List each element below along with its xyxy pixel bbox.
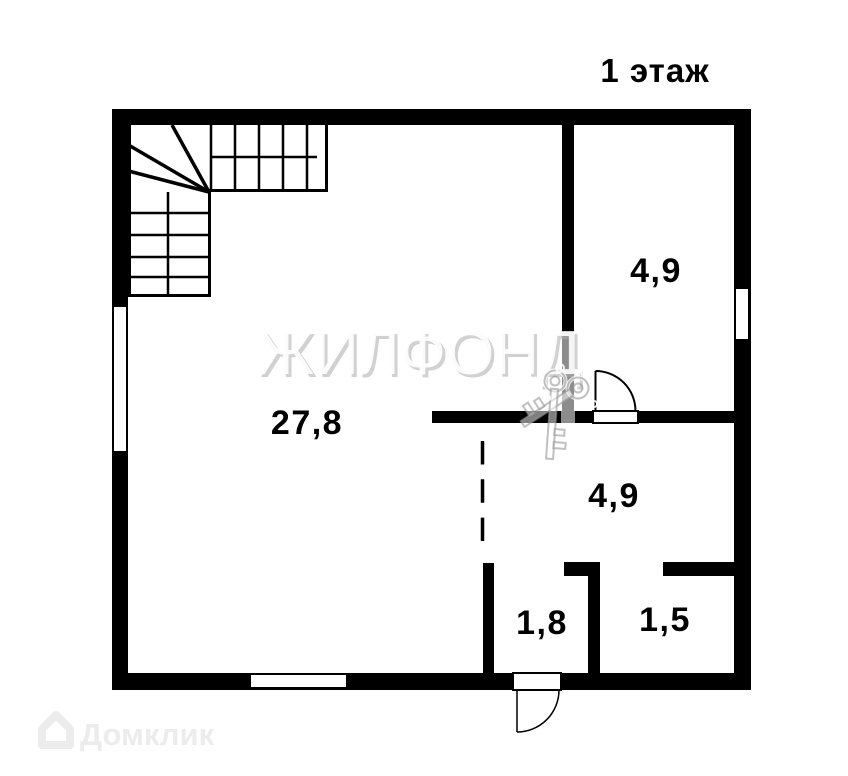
svg-text:4,9: 4,9	[630, 252, 682, 290]
svg-text:1,5: 1,5	[639, 601, 691, 639]
svg-text:1 этаж: 1 этаж	[600, 52, 709, 89]
svg-text:1,8: 1,8	[516, 604, 568, 642]
svg-text:Домклик: Домклик	[80, 717, 215, 752]
svg-text:27,8: 27,8	[271, 404, 343, 442]
svg-text:ЖИЛФОНД: ЖИЛФОНД	[257, 319, 581, 388]
svg-text:4,9: 4,9	[588, 477, 640, 515]
